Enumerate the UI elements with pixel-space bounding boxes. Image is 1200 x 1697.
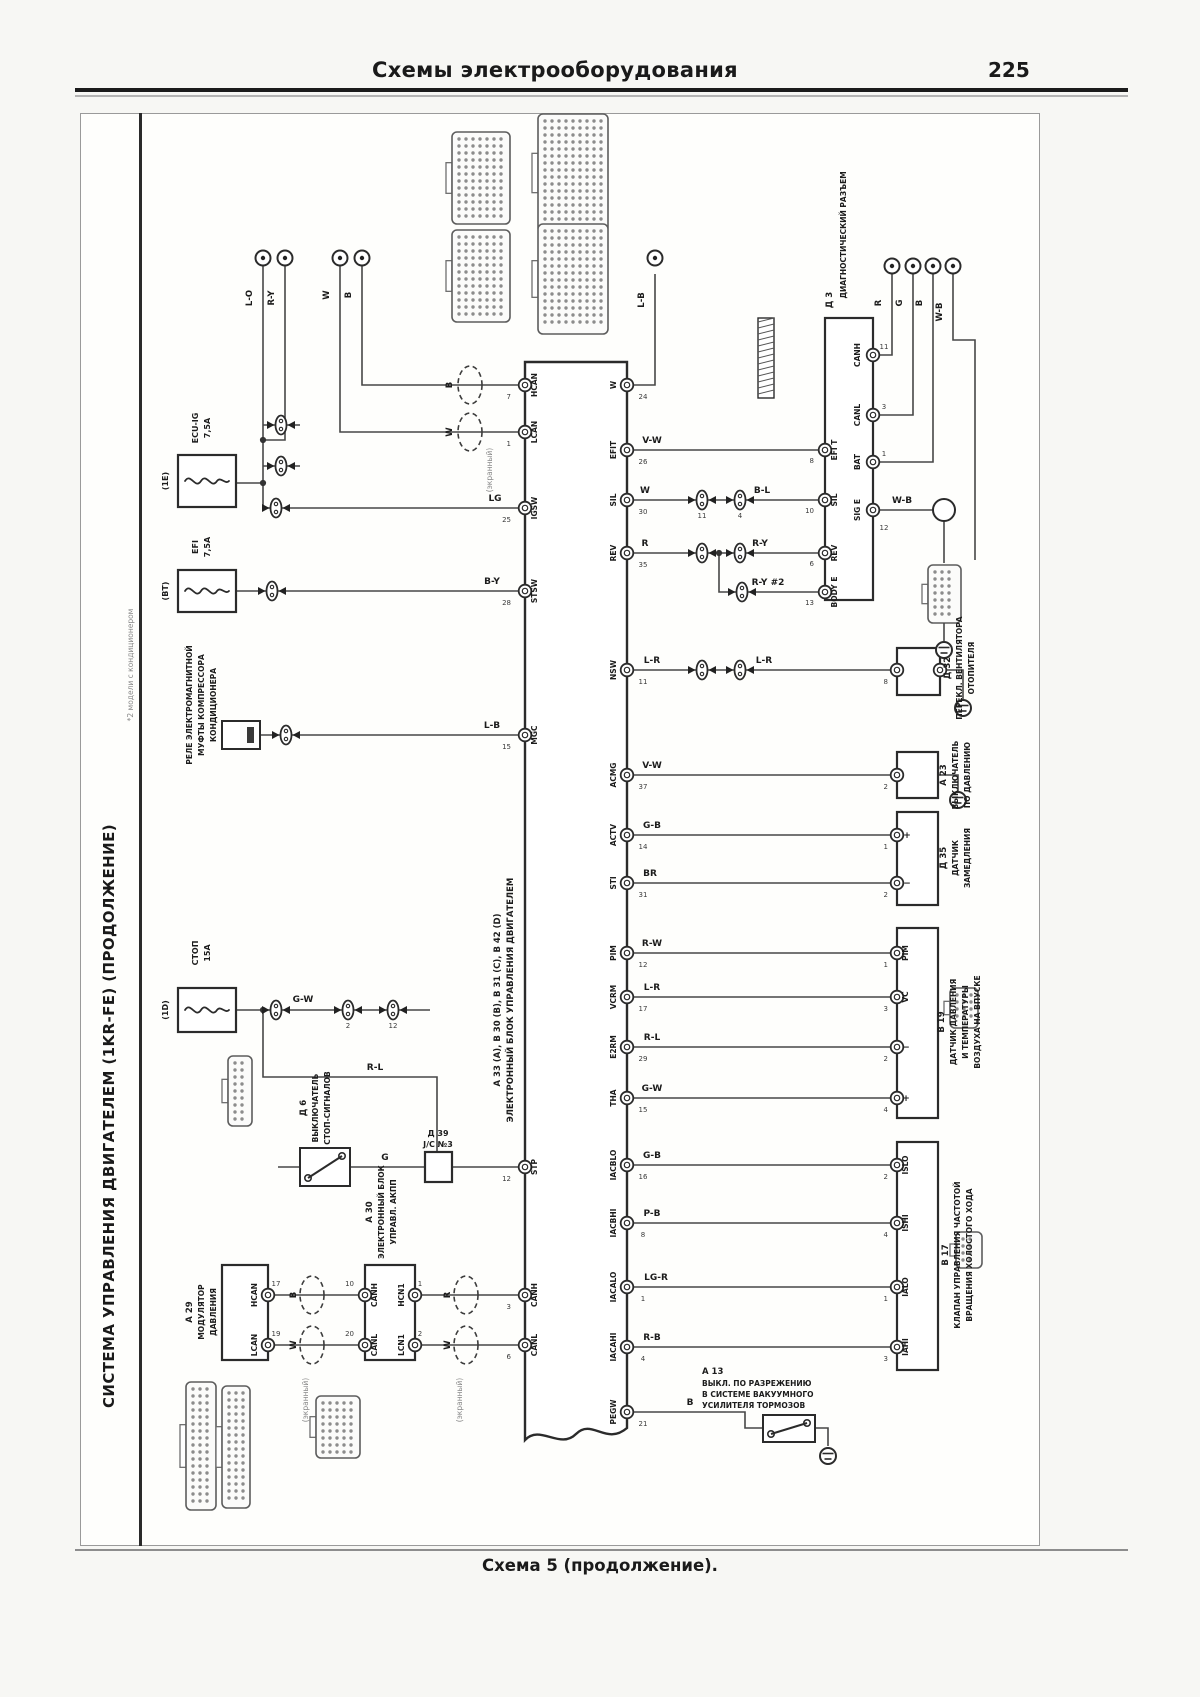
mating-arrow bbox=[709, 496, 717, 504]
connector-pin-dot bbox=[485, 207, 488, 210]
connector-pin-dot bbox=[543, 236, 546, 239]
connector-pin-dot bbox=[564, 140, 567, 143]
pin-number: 16 bbox=[639, 1173, 648, 1181]
connector-pin-dot bbox=[240, 1117, 243, 1120]
connector-pin-dot bbox=[191, 1408, 194, 1411]
connector-pin-dot bbox=[205, 1429, 208, 1432]
connector-tab bbox=[216, 1427, 222, 1468]
connector-pin-dot bbox=[499, 165, 502, 168]
mating-arrow bbox=[262, 1006, 270, 1014]
connector-pin-dot bbox=[564, 168, 567, 171]
pin bbox=[867, 349, 880, 362]
connector-pin-dot bbox=[564, 313, 567, 316]
connector-pin-dot bbox=[557, 236, 560, 239]
connector-pin-dot bbox=[599, 161, 602, 164]
connector-pin-dot bbox=[550, 210, 553, 213]
connector-pin-dot bbox=[457, 249, 460, 252]
wire-color-label: L-R bbox=[644, 983, 660, 993]
wiring-diagram: HCANLCANIGSWSTSWMGCSTPCANHCANLWEFITSILRE… bbox=[80, 113, 1040, 1546]
connector-pin-dot bbox=[578, 229, 581, 232]
mating-arrow bbox=[747, 549, 755, 557]
pin-name-label: EFI T bbox=[830, 439, 839, 461]
component-label: СТОП-СИГНАЛОВ bbox=[323, 1071, 332, 1145]
connector-pin-dot bbox=[349, 1450, 352, 1453]
connector-pin-dot bbox=[335, 1401, 338, 1404]
connector-pin-dot bbox=[571, 278, 574, 281]
wire-color-label: R-Y #2 bbox=[752, 578, 785, 588]
connector-pin-dot bbox=[557, 161, 560, 164]
connector-pin-dot bbox=[464, 242, 467, 245]
pin-number: 25 bbox=[502, 516, 511, 524]
connector-pin-dot bbox=[557, 154, 560, 157]
connector-pin-dot bbox=[234, 1433, 237, 1436]
connector-pin-dot bbox=[578, 250, 581, 253]
connector-pin-dot bbox=[227, 1419, 230, 1422]
inline-connector bbox=[343, 1001, 354, 1020]
connector-pin-dot bbox=[241, 1433, 244, 1436]
connector-pin-dot bbox=[471, 151, 474, 154]
connector-pin-dot bbox=[543, 126, 546, 129]
connector-pin-dot bbox=[564, 161, 567, 164]
pin-number: 11 bbox=[880, 343, 889, 351]
connector-pin-dot bbox=[241, 1496, 244, 1499]
mating-arrow bbox=[726, 496, 734, 504]
shield-wire-label: B bbox=[445, 382, 455, 388]
connector-pin-dot bbox=[571, 320, 574, 323]
connector-pin-dot bbox=[321, 1450, 324, 1453]
connector-pin-dot bbox=[933, 577, 936, 580]
connector-pin-dot bbox=[585, 217, 588, 220]
connector-pin-dot bbox=[578, 236, 581, 239]
connector-pin-dot bbox=[485, 172, 488, 175]
pin bbox=[621, 1406, 634, 1419]
component-label: A 13 bbox=[702, 1367, 723, 1377]
connector-pin-dot bbox=[492, 298, 495, 301]
pin-name-label: NSW bbox=[609, 659, 618, 680]
connector-pin-dot bbox=[564, 320, 567, 323]
pin-number: 4 bbox=[738, 512, 743, 520]
pin-name-label: BAT bbox=[853, 453, 862, 470]
inline-connector bbox=[697, 544, 708, 563]
pin-number: 15 bbox=[639, 1106, 648, 1114]
connector-pin-dot bbox=[578, 154, 581, 157]
mating-arrow bbox=[334, 1006, 342, 1014]
connector-pin-dot bbox=[485, 277, 488, 280]
connector-pin-dot bbox=[564, 285, 567, 288]
component-label: Д 3 bbox=[825, 292, 835, 309]
connector-pin-dot bbox=[578, 140, 581, 143]
connector-pin-dot bbox=[499, 298, 502, 301]
connector-pin-dot bbox=[240, 1103, 243, 1106]
wire-color-label: G-W bbox=[293, 995, 314, 1005]
connector-pin-dot bbox=[578, 119, 581, 122]
connector-pin-dot bbox=[464, 249, 467, 252]
connector-pin-dot bbox=[599, 313, 602, 316]
connector-pin-dot bbox=[550, 271, 553, 274]
connector-pin-dot bbox=[478, 284, 481, 287]
connector-pin-dot bbox=[499, 312, 502, 315]
pin-number: 26 bbox=[639, 458, 648, 466]
connector-pin-dot bbox=[543, 217, 546, 220]
pin-name-label: CANH bbox=[853, 343, 862, 367]
pin-number: 8 bbox=[641, 1231, 645, 1239]
connector-pin-dot bbox=[349, 1436, 352, 1439]
connector-pin-dot bbox=[550, 320, 553, 323]
connector-pin-dot bbox=[198, 1387, 201, 1390]
connector-pin-dot bbox=[592, 119, 595, 122]
connector-pin-dot bbox=[599, 203, 602, 206]
connector-pin-dot bbox=[205, 1492, 208, 1495]
connector-pin-dot bbox=[499, 256, 502, 259]
connector-pin-dot bbox=[233, 1089, 236, 1092]
pin-name-label: PIM bbox=[901, 945, 910, 961]
connector-pin-dot bbox=[499, 235, 502, 238]
connector-pin-dot bbox=[947, 577, 950, 580]
connector-pin-dot bbox=[233, 1110, 236, 1113]
connector-pin-dot bbox=[592, 320, 595, 323]
connector-pin-dot bbox=[349, 1422, 352, 1425]
connector-pin-dot bbox=[240, 1082, 243, 1085]
connector-pin-dot bbox=[592, 243, 595, 246]
connector-pin-dot bbox=[321, 1408, 324, 1411]
connector-pin-dot bbox=[492, 200, 495, 203]
connector-pin-dot bbox=[585, 306, 588, 309]
terminal-dot bbox=[261, 256, 265, 260]
component-label: ПО ДАВЛЕНИЮ bbox=[963, 742, 972, 808]
connector-pin-dot bbox=[457, 186, 460, 189]
pin bbox=[621, 877, 634, 890]
pin-name-label: PIM bbox=[609, 945, 618, 961]
component-label: КЛАПАН УПРАВЛЕНИЯ ЧАСТОТОЙ bbox=[953, 1181, 962, 1328]
connector-pin-dot bbox=[499, 214, 502, 217]
connector-pin-dot bbox=[592, 285, 595, 288]
connector-pin-dot bbox=[227, 1391, 230, 1394]
connector-pin-dot bbox=[457, 158, 460, 161]
pin-number: 14 bbox=[639, 843, 648, 851]
connector-pin-dot bbox=[492, 305, 495, 308]
connector-pin-dot bbox=[564, 119, 567, 122]
connector-pin-dot bbox=[499, 284, 502, 287]
connector-pin-dot bbox=[550, 203, 553, 206]
connector-pin-dot bbox=[571, 264, 574, 267]
connector-pin-dot bbox=[492, 207, 495, 210]
connector-pin-dot bbox=[543, 250, 546, 253]
mating-arrow bbox=[728, 588, 736, 596]
connector-pin-dot bbox=[557, 257, 560, 260]
component-label: ДАВЛЕНИЯ bbox=[209, 1288, 218, 1336]
connector-pin-dot bbox=[471, 193, 474, 196]
inline-connector bbox=[271, 1001, 282, 1020]
connector-pin-dot bbox=[599, 210, 602, 213]
connector-pin-dot bbox=[571, 217, 574, 220]
component-label: ВОЗДУХА НА ВПУСКЕ bbox=[973, 975, 982, 1068]
connector-pin-dot bbox=[233, 1068, 236, 1071]
pin-number: 3 bbox=[884, 1355, 888, 1363]
connector-pin-dot bbox=[599, 229, 602, 232]
connector-pin-dot bbox=[205, 1394, 208, 1397]
connector-pin-dot bbox=[471, 242, 474, 245]
connector-pin-dot bbox=[227, 1412, 230, 1415]
connector-pin-dot bbox=[205, 1401, 208, 1404]
pin-name-label: BODY E bbox=[830, 577, 839, 608]
inline-connector bbox=[388, 1001, 399, 1020]
connector-pin-dot bbox=[933, 584, 936, 587]
connector-pin-dot bbox=[241, 1419, 244, 1422]
note-label: *2 модели с кондиционером bbox=[126, 609, 135, 722]
connector-pin-dot bbox=[571, 292, 574, 295]
terminal-dot bbox=[951, 264, 955, 268]
connector-pin-dot bbox=[557, 189, 560, 192]
connector-pin-dot bbox=[205, 1436, 208, 1439]
connector-pin-dot bbox=[457, 200, 460, 203]
connector-pin-dot bbox=[557, 264, 560, 267]
connector-pin-dot bbox=[234, 1412, 237, 1415]
pin-number: 2 bbox=[884, 1055, 888, 1063]
connector-pin-dot bbox=[335, 1415, 338, 1418]
connector-pin-dot bbox=[599, 306, 602, 309]
terminal-dot bbox=[283, 256, 287, 260]
connector-pin-dot bbox=[240, 1068, 243, 1071]
connector-pin-dot bbox=[578, 278, 581, 281]
connector-pin-dot bbox=[940, 598, 943, 601]
connector-pin-dot bbox=[585, 236, 588, 239]
pin-name-label: CANL bbox=[853, 404, 862, 427]
connector-pin-dot bbox=[592, 182, 595, 185]
connector-pin-dot bbox=[571, 210, 574, 213]
connector-pin-dot bbox=[227, 1398, 230, 1401]
mating-arrow bbox=[379, 1006, 387, 1014]
pin-number: 19 bbox=[272, 1330, 281, 1338]
pin-name-label: ACTV bbox=[609, 824, 618, 846]
connector-pin-dot bbox=[241, 1391, 244, 1394]
pin-number: 35 bbox=[639, 561, 648, 569]
fuse-label: EFI bbox=[191, 540, 200, 554]
pin-name-label: LCAN bbox=[250, 1334, 259, 1356]
connector-pin-dot bbox=[592, 299, 595, 302]
shield-wire-label: W bbox=[445, 427, 455, 437]
connector-pin-dot bbox=[457, 214, 460, 217]
terminal-wire-label: W-B bbox=[935, 302, 945, 321]
connector-pin-dot bbox=[478, 242, 481, 245]
connector-pin-dot bbox=[543, 313, 546, 316]
welded-joint bbox=[933, 499, 955, 521]
connector-pin-dot bbox=[191, 1394, 194, 1397]
connector-pin-dot bbox=[599, 271, 602, 274]
connector-pin-dot bbox=[599, 285, 602, 288]
connector-pin-dot bbox=[198, 1415, 201, 1418]
pin-name-label: SIG E bbox=[853, 499, 862, 521]
pin-number: 29 bbox=[639, 1055, 648, 1063]
connector-pin-dot bbox=[578, 285, 581, 288]
wire-color-label: W bbox=[640, 486, 650, 496]
connector-grid bbox=[538, 114, 608, 232]
component-label: УПРАВЛ. АКПП bbox=[389, 1179, 398, 1244]
terminal-dot bbox=[653, 256, 657, 260]
connector-pin-dot bbox=[543, 264, 546, 267]
mating-arrow bbox=[288, 462, 296, 470]
connector-pin-dot bbox=[499, 172, 502, 175]
connector-pin-dot bbox=[599, 175, 602, 178]
pin-name-label: IALO bbox=[901, 1277, 910, 1296]
inline-connector bbox=[697, 491, 708, 510]
connector-pin-dot bbox=[592, 175, 595, 178]
fuse-label: (BT) bbox=[161, 582, 170, 601]
connector-pin-dot bbox=[191, 1443, 194, 1446]
connector-pin-dot bbox=[234, 1482, 237, 1485]
connector-pin-dot bbox=[328, 1415, 331, 1418]
connector-pin-dot bbox=[592, 217, 595, 220]
connector-pin-dot bbox=[571, 257, 574, 260]
connector-pin-dot bbox=[205, 1471, 208, 1474]
connector-pin-dot bbox=[464, 172, 467, 175]
connector-pin-dot bbox=[198, 1394, 201, 1397]
connector-pin-dot bbox=[492, 158, 495, 161]
connector-pin-dot bbox=[543, 306, 546, 309]
wire-color-label: R-L bbox=[367, 1063, 384, 1073]
wire bbox=[953, 274, 975, 560]
connector-pin-dot bbox=[349, 1443, 352, 1446]
connector-pin-dot bbox=[543, 278, 546, 281]
connector-pin-dot bbox=[227, 1489, 230, 1492]
connector-pin-dot bbox=[457, 242, 460, 245]
connector-pin-dot bbox=[471, 270, 474, 273]
connector-pin-dot bbox=[933, 598, 936, 601]
pin-name-label: − bbox=[903, 879, 911, 889]
connector-pin-dot bbox=[233, 1096, 236, 1099]
fuse-label: 7,5A bbox=[203, 417, 212, 438]
mating-arrow bbox=[283, 504, 291, 512]
connector-pin-dot bbox=[599, 320, 602, 323]
connector-pin-dot bbox=[571, 236, 574, 239]
connector-pin-dot bbox=[464, 186, 467, 189]
pin-name-label: IGSW bbox=[530, 496, 539, 519]
connector-pin-dot bbox=[464, 284, 467, 287]
connector-pin-dot bbox=[464, 305, 467, 308]
connector-pin-dot bbox=[940, 577, 943, 580]
mating-arrow bbox=[279, 587, 287, 595]
connector-pin-dot bbox=[947, 598, 950, 601]
pin bbox=[621, 829, 634, 842]
connector-pin-dot bbox=[457, 179, 460, 182]
connector-pin-dot bbox=[592, 250, 595, 253]
component-label: ЗАМЕДЛЕНИЯ bbox=[963, 828, 972, 888]
inline-connector bbox=[735, 661, 746, 680]
connector-pin-dot bbox=[557, 203, 560, 206]
connector-pin-dot bbox=[205, 1450, 208, 1453]
connector-pin-dot bbox=[592, 210, 595, 213]
connector-pin-dot bbox=[543, 182, 546, 185]
connector-pin-dot bbox=[578, 168, 581, 171]
connector-pin-dot bbox=[205, 1478, 208, 1481]
pin-name-label: REV bbox=[609, 544, 618, 561]
connector-pin-dot bbox=[578, 182, 581, 185]
connector-pin-dot bbox=[191, 1492, 194, 1495]
pin bbox=[621, 1341, 634, 1354]
connector-pin-dot bbox=[342, 1408, 345, 1411]
connector-pin-dot bbox=[240, 1110, 243, 1113]
connector-pin-dot bbox=[578, 243, 581, 246]
connector-pin-dot bbox=[478, 200, 481, 203]
connector-pin-dot bbox=[585, 320, 588, 323]
connector-pin-dot bbox=[485, 242, 488, 245]
connector-pin-dot bbox=[578, 147, 581, 150]
connector-pin-dot bbox=[227, 1426, 230, 1429]
connector-pin-dot bbox=[485, 249, 488, 252]
wire-color-label: R-B bbox=[643, 1333, 661, 1343]
connector-pin-dot bbox=[464, 256, 467, 259]
connector-pin-dot bbox=[499, 137, 502, 140]
connector-pin-dot bbox=[457, 298, 460, 301]
connector-pin-dot bbox=[550, 313, 553, 316]
connector-pin-dot bbox=[933, 591, 936, 594]
connector-pin-dot bbox=[585, 264, 588, 267]
connector-pin-dot bbox=[550, 140, 553, 143]
connector-pin-dot bbox=[933, 605, 936, 608]
connector-pin-dot bbox=[492, 151, 495, 154]
mating-arrow bbox=[262, 504, 270, 512]
pin-number: 2 bbox=[884, 1173, 888, 1181]
connector-pin-dot bbox=[592, 147, 595, 150]
connector-pin-dot bbox=[478, 263, 481, 266]
component-label: В 17 bbox=[941, 1244, 951, 1265]
connector-pin-dot bbox=[592, 306, 595, 309]
connector-pin-dot bbox=[557, 250, 560, 253]
connector-pin-dot bbox=[564, 236, 567, 239]
connector-pin-dot bbox=[564, 306, 567, 309]
pin-number: 6 bbox=[507, 1353, 512, 1361]
component-label: ЭЛЕКТРОННЫЙ БЛОК bbox=[377, 1164, 386, 1259]
connector-pin-dot bbox=[191, 1422, 194, 1425]
connector-pin-dot bbox=[457, 284, 460, 287]
pin bbox=[621, 1217, 634, 1230]
connector-pin-dot bbox=[599, 217, 602, 220]
connector-pin-dot bbox=[241, 1461, 244, 1464]
connector-pin-dot bbox=[321, 1436, 324, 1439]
connector-pin-dot bbox=[585, 229, 588, 232]
connector-pin-dot bbox=[471, 249, 474, 252]
wire-color-label: W-B bbox=[892, 496, 912, 506]
inline-connector bbox=[267, 582, 278, 601]
connector-pin-dot bbox=[578, 126, 581, 129]
connector-pin-dot bbox=[492, 144, 495, 147]
connector-pin-dot bbox=[564, 292, 567, 295]
connector-pin-dot bbox=[464, 270, 467, 273]
wire-color-label: G-B bbox=[643, 1151, 661, 1161]
connector-pin-dot bbox=[550, 285, 553, 288]
connector-pin-dot bbox=[499, 249, 502, 252]
relay-contact bbox=[247, 727, 254, 743]
connector-pin-dot bbox=[240, 1096, 243, 1099]
connector-pin-dot bbox=[550, 217, 553, 220]
wire-color-label: P-B bbox=[643, 1209, 660, 1219]
connector-pin-dot bbox=[571, 147, 574, 150]
inline-connector bbox=[271, 499, 282, 518]
connector-pin-dot bbox=[457, 305, 460, 308]
pin bbox=[621, 1041, 634, 1054]
connector-pin-dot bbox=[471, 277, 474, 280]
connector-pin-dot bbox=[464, 214, 467, 217]
connector-pin-dot bbox=[457, 312, 460, 315]
connector-pin-dot bbox=[492, 235, 495, 238]
pin-number: 30 bbox=[639, 508, 648, 516]
connector-pin-dot bbox=[198, 1471, 201, 1474]
connector-pin-dot bbox=[485, 312, 488, 315]
connector-pin-dot bbox=[578, 320, 581, 323]
mating-arrow bbox=[747, 496, 755, 504]
fuse-label: 15A bbox=[203, 944, 212, 962]
connector-pin-dot bbox=[543, 147, 546, 150]
connector-tab bbox=[446, 163, 452, 194]
